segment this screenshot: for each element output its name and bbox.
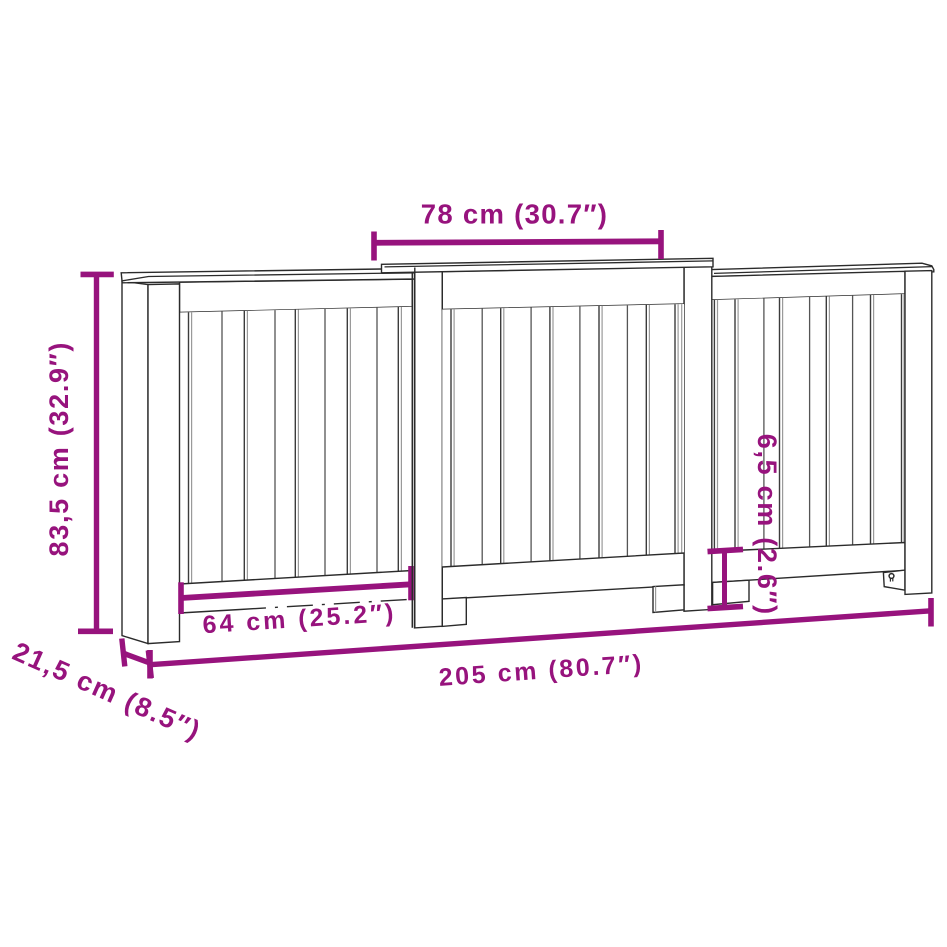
svg-text:78 cm (30.7″): 78 cm (30.7″) (421, 199, 609, 230)
svg-text:6,5 cm (2.6″): 6,5 cm (2.6″) (752, 434, 782, 616)
svg-text:83,5 cm (32.9″): 83,5 cm (32.9″) (44, 341, 74, 557)
